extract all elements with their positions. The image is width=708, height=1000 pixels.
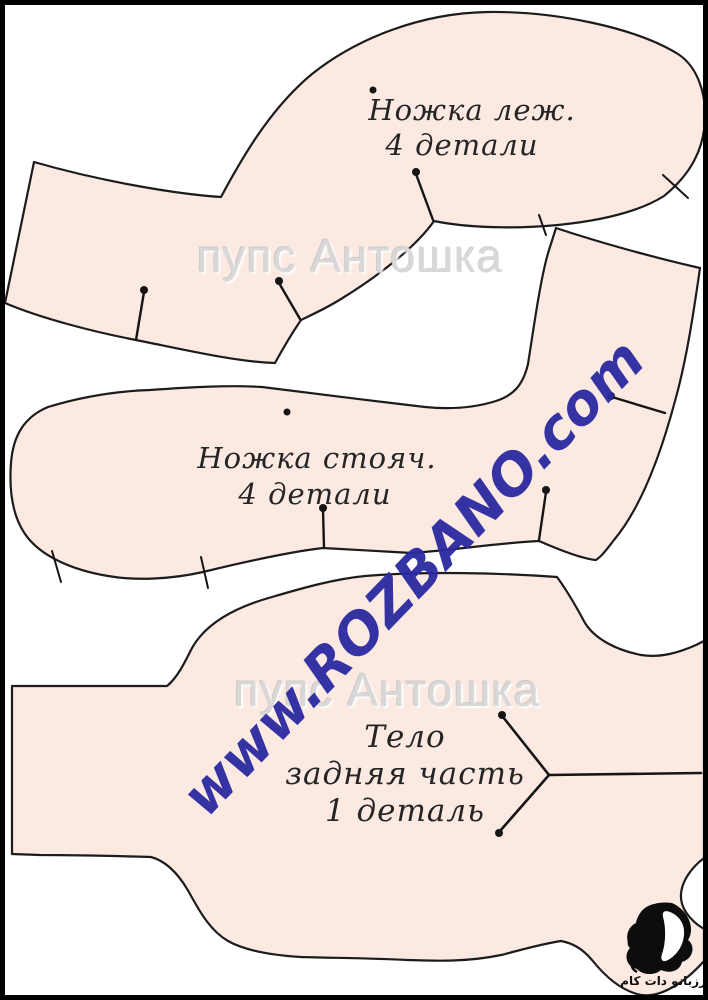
- pin-head: [140, 286, 148, 294]
- label-body-part: задняя часть: [245, 756, 565, 792]
- label-leg-standing-name: Ножка стояч.: [167, 441, 467, 475]
- pin-head: [495, 829, 503, 837]
- site-logo: رزبانو دات کام: [624, 900, 706, 996]
- pattern-sheet: пупс Антошка пупс Антошка www.ROZBANO.co…: [0, 0, 708, 1000]
- pin-head: [412, 168, 420, 176]
- shop-watermark-top: пупс Антошка: [120, 229, 580, 283]
- woman-hair-logo-icon: [624, 900, 706, 974]
- pin-mark: [323, 510, 324, 548]
- label-leg-lying-qty: 4 детали: [312, 128, 612, 162]
- label-leg-standing-qty: 4 детали: [165, 477, 465, 511]
- shop-watermark-bottom: пупс Антошка: [157, 663, 617, 717]
- label-body-qty: 1 деталь: [245, 793, 565, 829]
- mark-dot: [284, 409, 291, 416]
- site-logo-caption: رزبانو دات کام: [624, 974, 706, 988]
- label-leg-lying-name: Ножка леж.: [322, 93, 622, 127]
